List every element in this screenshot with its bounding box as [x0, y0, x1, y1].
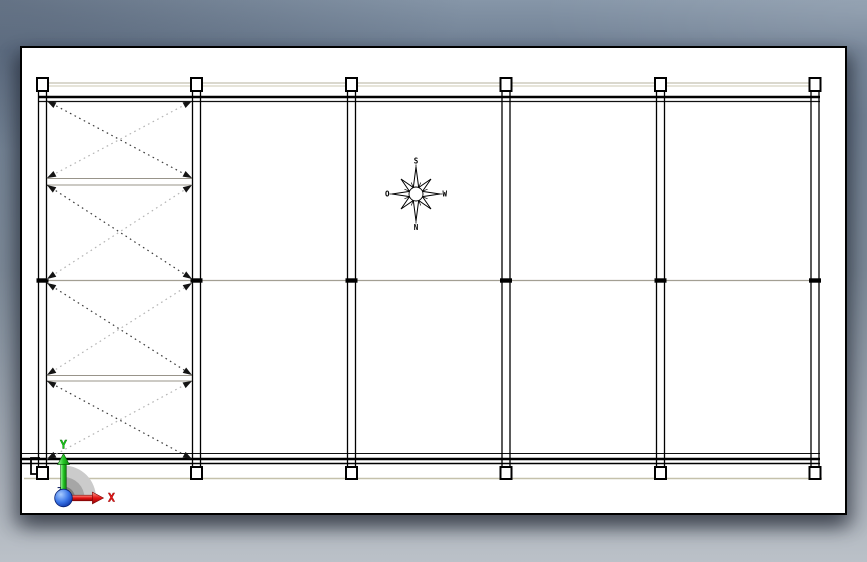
drawing-sheet [20, 46, 847, 515]
x-axis-label: X [108, 491, 115, 505]
compass-label-top: S [414, 157, 419, 166]
origin-sphere [55, 489, 73, 507]
compass-label-right: W [443, 190, 448, 199]
y-axis-arrowhead [58, 454, 70, 465]
x-axis-arrowhead [92, 492, 103, 504]
compass-rose-icon: S N O W [383, 156, 449, 232]
compass-label-left: O [385, 190, 390, 199]
y-axis-label: Y [60, 438, 67, 452]
compass-label-bottom: N [414, 223, 419, 232]
compass-hub [409, 187, 423, 201]
cad-graphics-viewport[interactable]: S N O W Z Y X [0, 0, 867, 562]
origin-triad-icon: Z Y X [28, 432, 118, 512]
